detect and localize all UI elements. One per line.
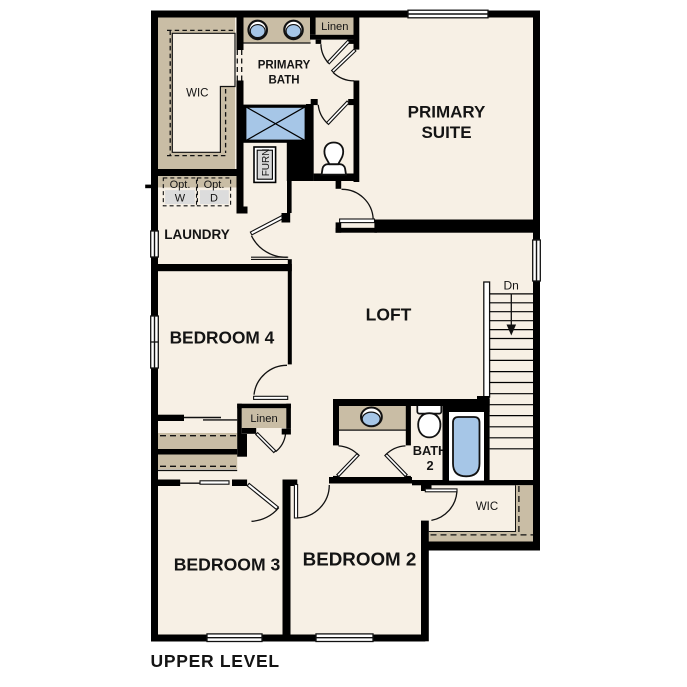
- svg-text:LAUNDRY: LAUNDRY: [164, 227, 230, 242]
- svg-text:Opt.: Opt.: [170, 179, 191, 191]
- svg-text:UPPER LEVEL: UPPER LEVEL: [151, 651, 280, 671]
- svg-text:WIC: WIC: [186, 87, 208, 99]
- svg-text:PRIMARY: PRIMARY: [408, 103, 486, 122]
- svg-text:FURN: FURN: [261, 149, 272, 177]
- svg-text:BATH: BATH: [413, 443, 448, 458]
- svg-text:LOFT: LOFT: [366, 305, 412, 325]
- svg-text:W: W: [175, 193, 186, 205]
- svg-text:D: D: [210, 193, 218, 205]
- svg-text:BEDROOM 4: BEDROOM 4: [170, 328, 275, 348]
- svg-text:BATH: BATH: [268, 74, 299, 86]
- svg-text:BEDROOM 2: BEDROOM 2: [303, 549, 417, 570]
- svg-text:Linen: Linen: [321, 21, 348, 33]
- svg-text:Dn: Dn: [504, 278, 519, 292]
- svg-text:Opt.: Opt.: [204, 179, 225, 191]
- svg-text:PRIMARY: PRIMARY: [258, 59, 311, 71]
- svg-text:Linen: Linen: [250, 413, 277, 425]
- svg-text:SUITE: SUITE: [421, 123, 471, 142]
- svg-text:2: 2: [426, 458, 433, 473]
- svg-text:WIC: WIC: [476, 501, 498, 513]
- svg-text:BEDROOM 3: BEDROOM 3: [174, 555, 281, 575]
